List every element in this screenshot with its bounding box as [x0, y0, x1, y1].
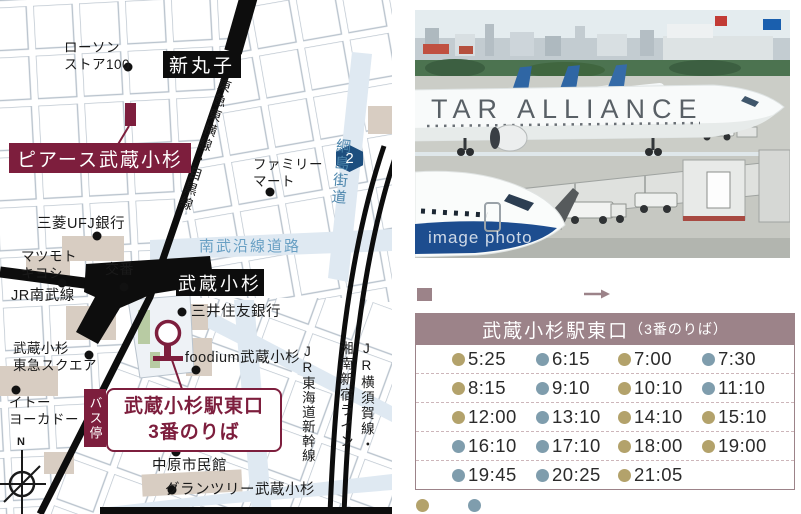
time-text: 7:30 [718, 348, 756, 370]
time-dot-gold [452, 353, 465, 366]
time-text: 13:10 [552, 406, 601, 428]
timetable-subtitle: （3番のりば） [629, 319, 728, 339]
time-text: 12:00 [468, 406, 517, 428]
time-entry: 10:10 [618, 377, 702, 399]
time-text: 5:25 [468, 348, 506, 370]
access-info-page: ローソン ストア100 新丸子 ピアース武蔵小杉 ファミリー マート 2 綱島街… [0, 0, 801, 514]
time-text: 17:10 [552, 435, 601, 457]
property-name-label: ピアース武蔵小杉 [9, 143, 191, 173]
fuselage-text: TAR ALLIANCE [431, 94, 704, 124]
time-dot-blue [452, 469, 465, 482]
map-label-ito-yokado: イトー ヨーカドー [9, 395, 79, 429]
map-label-jr-tokaido-shinkansen: JR東海道新幹線 [298, 344, 315, 463]
time-dot-blue [702, 382, 715, 395]
map-label-koban: 交番 [105, 261, 134, 279]
time-entry: 7:30 [702, 348, 796, 370]
timetable-row: 8:159:1010:1011:10 [416, 374, 794, 403]
legend-dot-gold [416, 499, 429, 512]
time-text: 16:10 [468, 435, 517, 457]
time-entry: 11:10 [702, 377, 796, 399]
map-station-musashi-kosugi: 武蔵小杉 [176, 269, 264, 296]
legend-origin-marker [417, 288, 432, 301]
time-entry: 7:00 [618, 348, 702, 370]
time-text: 15:10 [718, 406, 767, 428]
map-label-shonan-shinjuku: 湘南新宿ライン [336, 341, 353, 450]
airport-photo: TAR ALLIANCE [415, 10, 790, 258]
time-text: 21:05 [634, 464, 683, 486]
time-text: 19:00 [718, 435, 767, 457]
timetable-row: 5:256:157:007:30 [416, 345, 794, 374]
time-entry: 9:10 [536, 377, 618, 399]
time-entry: 19:45 [452, 464, 536, 486]
time-text: 8:15 [468, 377, 506, 399]
map-label-nakahara: 中原市民館 [152, 457, 227, 475]
time-dot-gold [702, 411, 715, 424]
map-station-shin-maruko: 新丸子 [163, 51, 241, 78]
time-entry: 21:05 [618, 464, 702, 486]
time-dot-gold [452, 411, 465, 424]
time-text: 7:00 [634, 348, 672, 370]
image-photo-watermark: image photo [428, 228, 533, 248]
time-dot-blue [452, 440, 465, 453]
time-dot-gold [618, 469, 631, 482]
map-label-jr-nanbu: JR南武線 [11, 287, 75, 305]
route-arrow-icon [584, 289, 610, 299]
time-text: 20:25 [552, 464, 601, 486]
time-text: 10:10 [634, 377, 683, 399]
map-label-jr-yokosuka: JR横須賀線・ [357, 341, 374, 453]
time-dot-gold [702, 440, 715, 453]
map-label-lawson: ローソン ストア100 [64, 40, 130, 74]
area-map: ローソン ストア100 新丸子 ピアース武蔵小杉 ファミリー マート 2 綱島街… [0, 0, 392, 514]
map-label-grand-tree: グランツリー武蔵小杉 [165, 481, 315, 499]
map-label-family-mart: ファミリー マート [253, 157, 323, 191]
airport-photo-graphic: TAR ALLIANCE [415, 10, 790, 258]
time-entry: 14:10 [618, 406, 702, 428]
bus-timetable: 武蔵小杉駅東口（3番のりば） 5:256:157:007:308:159:101… [415, 313, 795, 490]
time-text: 19:45 [468, 464, 517, 486]
time-entry: 18:00 [618, 435, 702, 457]
time-entry: 20:25 [536, 464, 618, 486]
map-label-smbc: 三井住友銀行 [191, 303, 281, 321]
timetable-row: 12:0013:1014:1015:10 [416, 403, 794, 432]
time-dot-gold [618, 382, 631, 395]
compass-n-label: N [17, 436, 25, 450]
time-text: 14:10 [634, 406, 683, 428]
timetable-title: 武蔵小杉駅東口 [482, 316, 629, 343]
time-dot-blue [702, 353, 715, 366]
time-text: 11:10 [718, 377, 765, 399]
time-text: 9:10 [552, 377, 590, 399]
time-entry: 17:10 [536, 435, 618, 457]
time-text: 18:00 [634, 435, 683, 457]
time-entry: 6:15 [536, 348, 618, 370]
time-entry: 15:10 [702, 406, 796, 428]
time-entry: 5:25 [452, 348, 536, 370]
timetable-row: 16:1017:1018:0019:00 [416, 432, 794, 461]
map-label-foodium: foodium武蔵小杉 [185, 349, 300, 367]
time-text: 6:15 [552, 348, 590, 370]
map-label-mitsubishi-ufj: 三菱UFJ銀行 [37, 215, 125, 233]
time-dot-gold [618, 411, 631, 424]
time-dot-gold [452, 382, 465, 395]
timetable-row: 19:4520:2521:05 [416, 461, 794, 489]
bus-stop-tag: バス停 [84, 389, 106, 447]
time-dot-blue [536, 440, 549, 453]
time-entry: 8:15 [452, 377, 536, 399]
time-dot-blue [536, 353, 549, 366]
time-dot-blue [536, 411, 549, 424]
timetable-body: 5:256:157:007:308:159:1010:1011:1012:001… [415, 345, 795, 490]
time-dot-gold [618, 440, 631, 453]
map-label-tokyu-square: 武蔵小杉 東急スクエア [13, 341, 97, 375]
time-entry: 13:10 [536, 406, 618, 428]
map-label-matsumoto-kiyoshi: マツモト キヨシ [21, 249, 77, 283]
time-entry: 19:00 [702, 435, 796, 457]
legend-dot-blue [468, 499, 481, 512]
time-entry: 16:10 [452, 435, 536, 457]
time-dot-blue [536, 382, 549, 395]
time-dot-blue [536, 469, 549, 482]
time-dot-gold [618, 353, 631, 366]
timetable-header: 武蔵小杉駅東口（3番のりば） [415, 313, 795, 345]
east-exit-callout: 武蔵小杉駅東口 3番のりば [106, 388, 282, 452]
time-entry: 12:00 [452, 406, 536, 428]
map-label-nanbu-ensen-road: 南武沿線道路 [199, 238, 301, 257]
